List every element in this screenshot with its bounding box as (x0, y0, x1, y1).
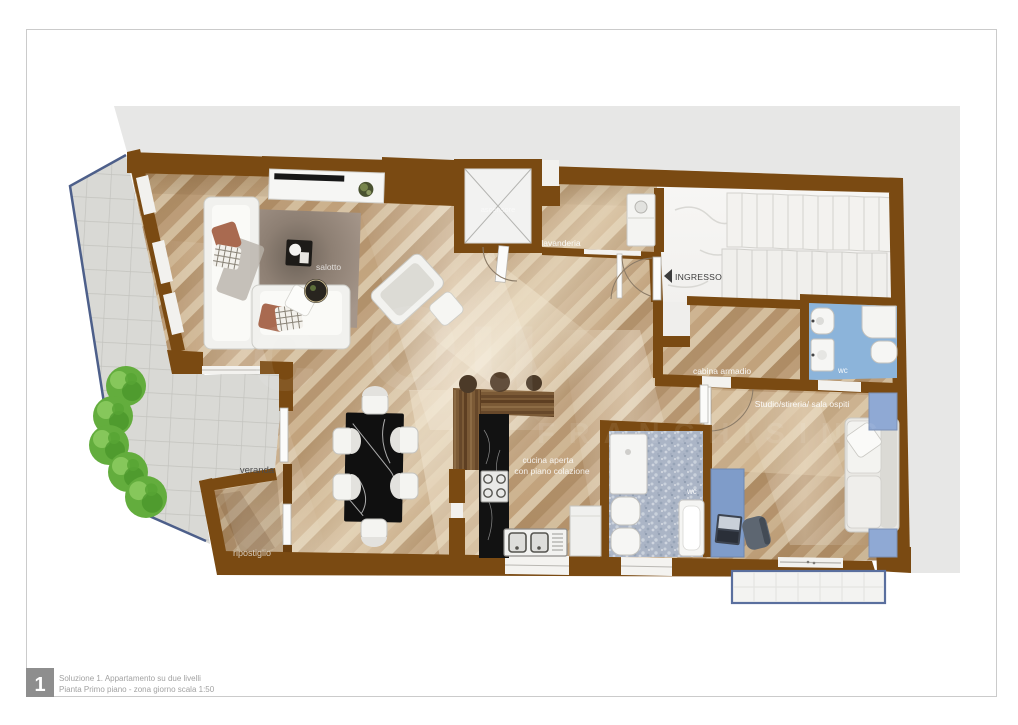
svg-text:salotto: salotto (316, 262, 341, 272)
svg-text:Studio/stireria/ sala ospiti: Studio/stireria/ sala ospiti (755, 399, 850, 409)
svg-text:c Ou: c Ou (250, 282, 549, 416)
svg-text:INGRESSO: INGRESSO (675, 272, 722, 282)
svg-text:cabina armadio: cabina armadio (693, 366, 751, 376)
svg-text:Pianta Primo piano - zona gior: Pianta Primo piano - zona giorno scala 1… (59, 685, 215, 694)
svg-text:FRANCHISING: FRANCHISING (537, 418, 892, 450)
svg-text:ripostiglio: ripostiglio (233, 548, 271, 558)
svg-text:wc: wc (837, 366, 848, 375)
svg-text:cucina aperta: cucina aperta (522, 455, 573, 465)
svg-text:ascensore: ascensore (481, 205, 516, 214)
svg-text:Soluzione 1. Appartamento su d: Soluzione 1. Appartamento su due livelli (59, 674, 201, 683)
svg-text:con piano colazione: con piano colazione (514, 466, 589, 476)
svg-text:1: 1 (34, 674, 45, 696)
svg-text:wc: wc (686, 487, 697, 496)
svg-text:lavanderia: lavanderia (541, 238, 580, 248)
svg-text:veranda: veranda (240, 465, 275, 476)
